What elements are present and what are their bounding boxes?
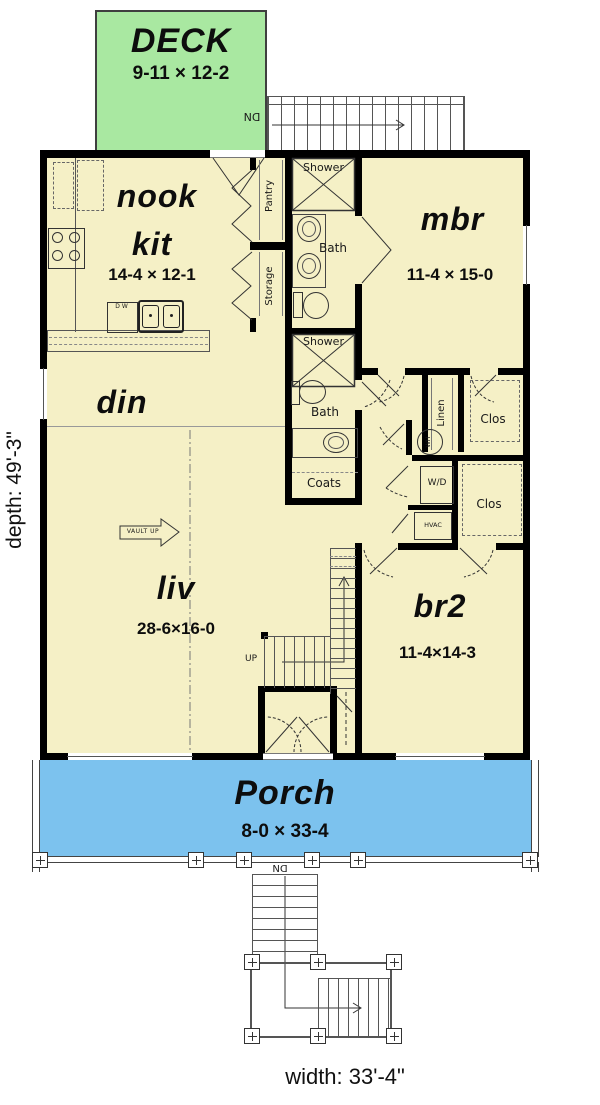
bath2-door	[362, 380, 390, 407]
drain-icon	[149, 314, 152, 317]
counter-peninsula	[47, 330, 210, 352]
coats-rod	[292, 472, 358, 473]
bifold-door-icon	[232, 252, 252, 320]
wh-door	[380, 424, 404, 449]
deck-label: DECK	[100, 24, 262, 58]
exterior-stair-flight	[252, 874, 318, 962]
burner-icon	[52, 232, 63, 243]
shelf-line	[282, 160, 283, 240]
br2-label: br2	[360, 590, 520, 622]
shelf-line	[452, 378, 453, 450]
shelf-line	[282, 252, 283, 316]
toilet-bowl-icon	[299, 380, 326, 404]
clos-lower-door	[460, 548, 493, 577]
linen-label: Linen	[437, 382, 449, 444]
din-label: din	[60, 386, 184, 418]
stair-cut-line	[330, 566, 356, 567]
shelf-line	[259, 160, 260, 240]
refrigerator-icon	[53, 162, 74, 209]
bath2-label: Bath	[294, 406, 356, 418]
stair-post-icon	[386, 954, 402, 970]
entry-side-closet	[337, 692, 352, 748]
dishwasher-label: DW	[107, 304, 138, 310]
closet-shelf	[470, 380, 520, 442]
sink-icon	[302, 221, 316, 237]
br2-door	[364, 548, 397, 577]
toilet-tank-icon	[293, 292, 303, 318]
shelf-line	[259, 252, 260, 316]
toilet-bowl-icon	[303, 292, 329, 319]
stair-post-icon	[310, 954, 326, 970]
hvac-door	[392, 514, 408, 533]
deck-stair-arrow	[272, 120, 404, 130]
mbr-label: mbr	[370, 203, 535, 235]
ceiling-break-line	[47, 426, 285, 427]
coats-label: Coats	[290, 477, 358, 489]
floor-plan: DW WH W/D HVAC	[0, 0, 600, 1105]
stair-cut-line	[330, 556, 356, 557]
kit-label: kit	[72, 228, 232, 260]
sink-icon	[302, 258, 316, 274]
porch-post-icon	[350, 852, 366, 868]
bath1-label: Bath	[304, 242, 362, 254]
kit-size: 14-4 × 12-1	[72, 266, 232, 283]
up-label: UP	[240, 655, 262, 664]
porch-post-icon	[236, 852, 252, 868]
washer-dryer-label: W/D	[420, 479, 454, 488]
clos-upper-label: Clos	[464, 413, 522, 425]
counter-detail	[49, 337, 208, 338]
burner-icon	[52, 250, 63, 261]
entry-double-door	[266, 717, 329, 752]
porch-label: Porch	[200, 776, 370, 810]
porch-post-icon	[304, 852, 320, 868]
stair-post-icon	[310, 1028, 326, 1044]
water-heater-label: WH	[425, 429, 435, 455]
shower-label: Shower	[292, 162, 355, 173]
stair-post-icon	[244, 1028, 260, 1044]
vault-up-label: VAULT UP	[122, 529, 164, 535]
porch-dn-label: DN	[265, 857, 295, 872]
pantry-label: Pantry	[265, 166, 277, 226]
depth-dimension: depth: 49'-3"	[4, 410, 28, 570]
sink-icon	[328, 436, 344, 449]
hvac-label: HVAC	[414, 522, 452, 529]
wd-door	[386, 466, 408, 497]
stair-post-icon	[386, 1028, 402, 1044]
stair-upper-run	[330, 548, 356, 694]
porch-post-icon	[522, 852, 538, 868]
liv-size: 28-6×16-0	[96, 620, 256, 637]
porch-post-icon	[188, 852, 204, 868]
width-dimension: width: 33'-4"	[230, 1066, 460, 1092]
landing-frame	[250, 962, 252, 1038]
clos-lower-label: Clos	[458, 498, 520, 510]
counter-detail	[49, 344, 208, 345]
mbr-size: 11-4 × 15-0	[370, 266, 530, 283]
stair-lower-run	[264, 636, 330, 688]
porch-size: 8-0 × 33-4	[200, 822, 370, 841]
porch-post-icon	[32, 852, 48, 868]
exterior-stair-flight	[318, 978, 392, 1038]
deck-dn-label: DN	[238, 106, 266, 122]
stair-post-icon	[244, 954, 260, 970]
shower-label: Shower	[292, 336, 355, 347]
deck-size: 9-11 × 12-2	[100, 64, 262, 83]
hall-door	[378, 375, 404, 402]
br2-size: 11-4×14-3	[355, 644, 520, 661]
drain-icon	[170, 314, 173, 317]
liv-label: liv	[96, 572, 256, 604]
storage-label: Storage	[265, 256, 277, 316]
nook-label: nook	[77, 180, 237, 212]
